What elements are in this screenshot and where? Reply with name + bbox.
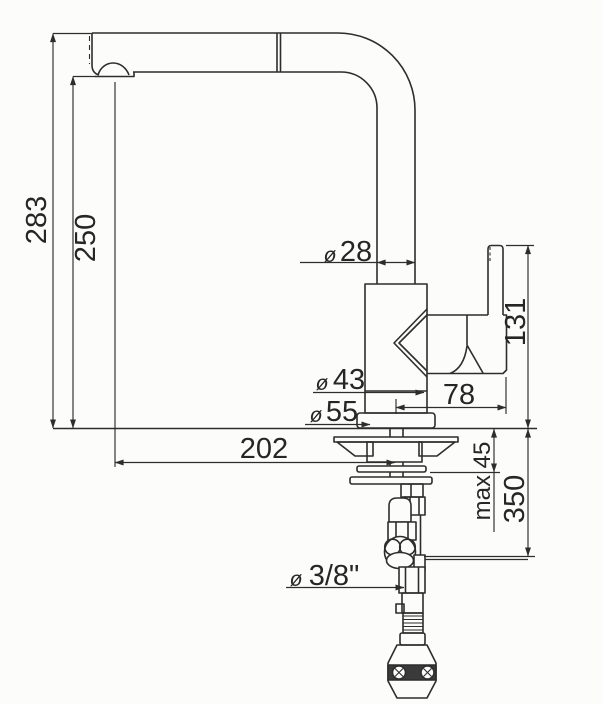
faucet-body [365, 284, 427, 413]
dim-43-diameter-symbol: ø [316, 372, 329, 395]
dim-283-label: 283 [21, 196, 53, 244]
dim-28-label: 28 [340, 236, 372, 268]
technical-drawing-canvas: 283 250 ø 28 131 ø 43 78 ø 55 202 max 45… [0, 0, 602, 704]
hose-thread-ribs [403, 616, 423, 630]
dim-28-diameter-symbol: ø [324, 244, 337, 267]
hose-union-nut [401, 484, 423, 497]
base-flange [357, 413, 435, 428]
valve-knob-front [387, 553, 414, 569]
dim-max45-label: max 45 [469, 442, 496, 521]
spray-head-dome [98, 63, 129, 75]
dim-43-label: 43 [333, 364, 365, 396]
dim-38-diameter-symbol: ø [290, 568, 303, 591]
mounting-bracket-right-wing [419, 442, 455, 456]
dim-55-diameter-symbol: ø [310, 404, 323, 427]
dimension-labels: 283 250 ø 28 131 ø 43 78 ø 55 202 max 45… [21, 196, 532, 592]
dim-131-label: 131 [500, 298, 532, 346]
mounting-bracket-block [367, 442, 422, 462]
dim-250-label: 250 [70, 214, 102, 262]
lock-washer [357, 466, 426, 472]
dim-78-label: 78 [443, 379, 475, 411]
hose-connector-lower [402, 593, 423, 613]
hose-connector-upper [399, 567, 425, 593]
dim-38-label: 3/8" [309, 560, 360, 592]
dim-55-label: 55 [326, 396, 358, 428]
dim-350-label: 350 [499, 475, 531, 523]
faucet-dimension-drawing: 283 250 ø 28 131 ø 43 78 ø 55 202 max 45… [0, 0, 602, 704]
weight-cap [400, 633, 425, 645]
faucet-outline [53, 33, 537, 698]
handle-block-seam [467, 315, 483, 373]
spray-head-end-cap [92, 33, 99, 75]
dimension-lines [53, 34, 535, 588]
valve-inlet-cylinder [389, 498, 411, 522]
handle-block-curve [450, 346, 467, 374]
dim-202-label: 202 [240, 433, 288, 465]
lock-nut-disc [350, 477, 432, 484]
